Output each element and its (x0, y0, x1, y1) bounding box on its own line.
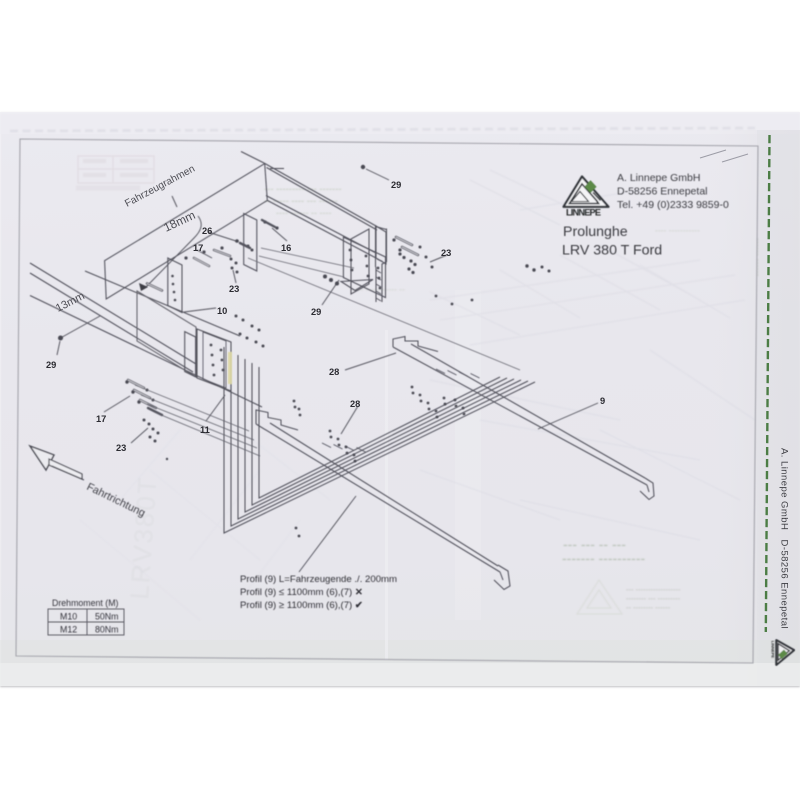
svg-text:Profil (9) ≤ 1100mm (6),(7): Profil (9) ≤ 1100mm (6),(7) ✕ (240, 587, 363, 598)
svg-text:D-58256 Ennepetal: D-58256 Ennepetal (617, 186, 708, 198)
svg-text:23: 23 (441, 248, 451, 258)
svg-text:16: 16 (281, 243, 291, 253)
svg-text:------- ----------: ------- ---------- (562, 550, 645, 566)
svg-text:A. Linnepe GmbH: A. Linnepe GmbH (617, 172, 700, 184)
svg-text:---- -----------: ---- ----------- (655, 225, 700, 235)
svg-text:10: 10 (217, 306, 227, 316)
svg-text:M12: M12 (60, 625, 77, 635)
svg-text:9: 9 (600, 396, 605, 406)
svg-text:Profil (9) ≥ 1100mm (6),(7): Profil (9) ≥ 1100mm (6),(7) ✔ (240, 600, 363, 611)
svg-text:LINNEPE: LINNEPE (771, 641, 776, 659)
svg-text:Drehmoment (M): Drehmoment (M) (52, 598, 119, 608)
svg-text:-------- --- ---------: -------- --- --------- (626, 594, 681, 603)
svg-text:LRV 380 T Ford: LRV 380 T Ford (562, 243, 662, 259)
svg-text:LRV380T: LRV380T (124, 475, 163, 600)
svg-text:LINNEPE: LINNEPE (566, 208, 601, 218)
svg-text:17: 17 (96, 414, 106, 424)
svg-text:Tel. +49 (0)2333 9859-0: Tel. +49 (0)2333 9859-0 (617, 199, 729, 211)
svg-text:M10: M10 (60, 612, 77, 622)
svg-text:29: 29 (391, 180, 401, 190)
svg-text:Prolunghe: Prolunghe (563, 224, 628, 240)
svg-text:-- -------- ------: -- -------- ------ (626, 603, 671, 612)
svg-text:11: 11 (200, 425, 210, 435)
svg-text:18mm: 18mm (161, 208, 197, 235)
svg-text:26: 26 (202, 226, 212, 236)
svg-text:28: 28 (329, 367, 339, 377)
svg-text:23: 23 (116, 443, 126, 453)
svg-text:29: 29 (311, 307, 321, 317)
svg-text:13mm: 13mm (54, 290, 87, 315)
svg-text:80Nm: 80Nm (95, 625, 118, 635)
svg-text:28: 28 (350, 399, 360, 409)
svg-text:--- ------------------: --- ------------------ (626, 585, 681, 594)
svg-text:17: 17 (193, 243, 203, 253)
svg-text:A. Linnepe GmbH D-58256 Enne: A. Linnepe GmbH D-58256 Ennepetal (779, 448, 790, 629)
svg-text:50Nm: 50Nm (95, 612, 118, 622)
svg-text:29: 29 (46, 360, 56, 370)
svg-text:Profil (9) L=Fahrzeugende ./.: Profil (9) L=Fahrzeugende ./. 200mm (240, 574, 397, 585)
svg-text:--- --------- --- -------: --- --------- --- ------- (264, 184, 342, 195)
svg-text:23: 23 (229, 284, 239, 294)
svg-text:------ ------: ------ ------ (753, 238, 763, 276)
